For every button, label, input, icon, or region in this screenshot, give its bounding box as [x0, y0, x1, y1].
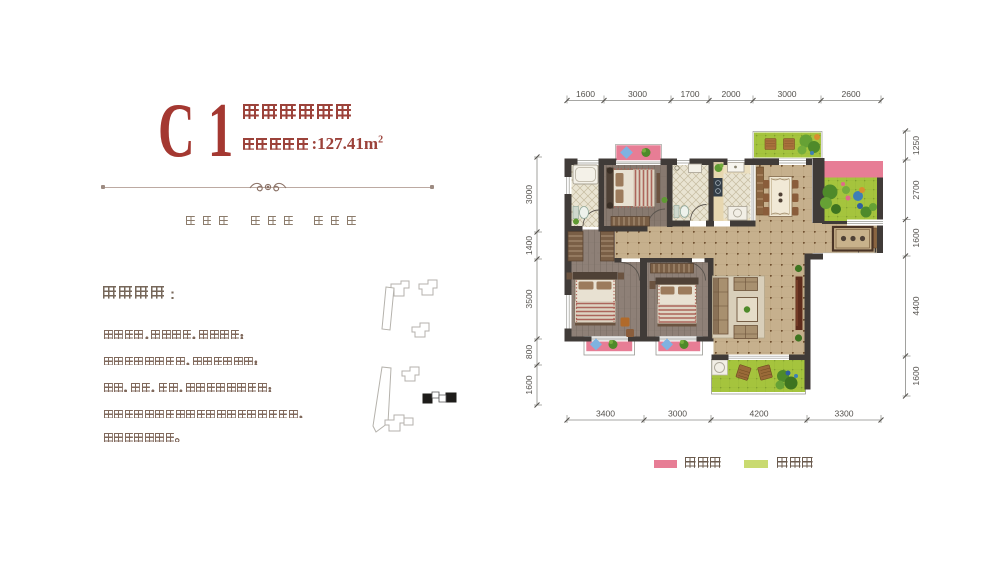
svg-text:1250: 1250 [911, 136, 921, 155]
svg-text:3000: 3000 [777, 89, 796, 99]
svg-text:3000: 3000 [524, 185, 534, 204]
svg-text:2700: 2700 [911, 180, 921, 199]
svg-text:2600: 2600 [841, 89, 860, 99]
svg-text:1600: 1600 [576, 89, 595, 99]
svg-text:1400: 1400 [524, 236, 534, 255]
svg-text:3500: 3500 [524, 289, 534, 308]
svg-text:2000: 2000 [721, 89, 740, 99]
svg-text:1700: 1700 [680, 89, 699, 99]
svg-text:3000: 3000 [628, 89, 647, 99]
svg-text:1600: 1600 [911, 366, 921, 385]
svg-text:1600: 1600 [524, 375, 534, 394]
svg-text:800: 800 [524, 345, 534, 360]
svg-text:3300: 3300 [834, 409, 853, 419]
svg-text:1600: 1600 [911, 228, 921, 247]
svg-text:4400: 4400 [911, 296, 921, 315]
svg-text:4200: 4200 [749, 409, 768, 419]
svg-text:3400: 3400 [596, 409, 615, 419]
svg-text:3000: 3000 [668, 409, 687, 419]
